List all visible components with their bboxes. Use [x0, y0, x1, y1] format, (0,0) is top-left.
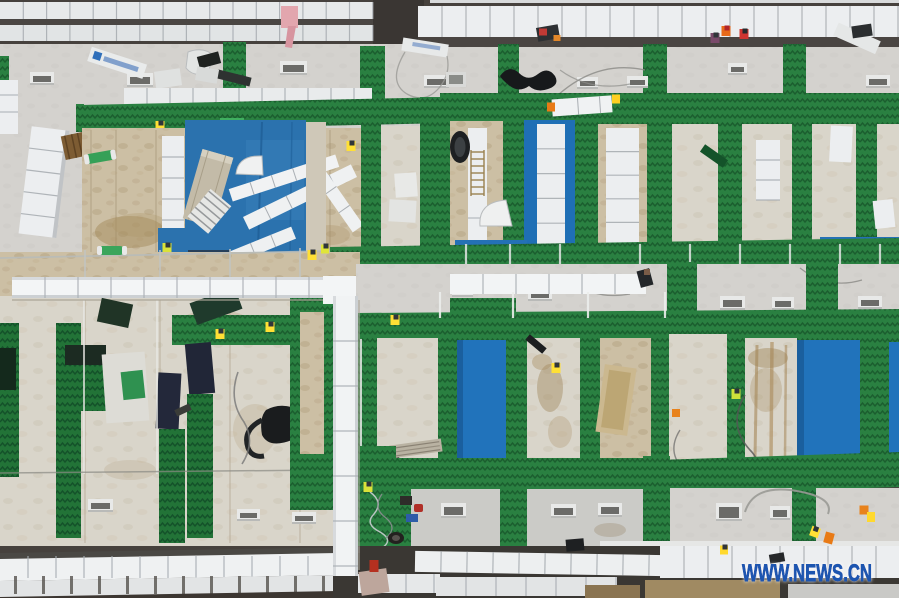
svg-text:WWW.NEWS.CN: WWW.NEWS.CN: [742, 560, 872, 587]
